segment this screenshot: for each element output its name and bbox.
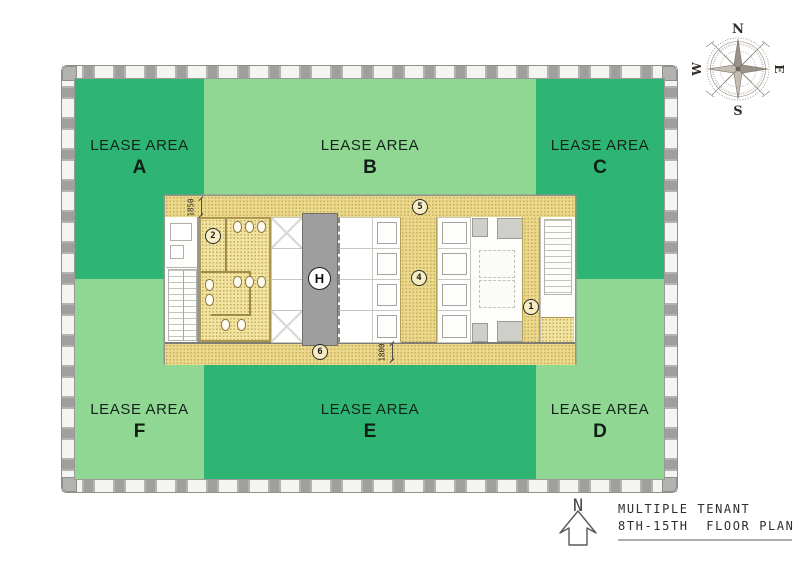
lease-area-e-label: LEASE AREA E [204,401,536,443]
hoistway-marker: H [308,267,331,290]
lease-area-c-title: LEASE AREA [536,137,664,154]
lease-area-a-letter: A [75,157,204,179]
drawing-title: MULTIPLE TENANT 8TH-15TH FLOOR PLAN [618,501,795,541]
elevator-cars-west [372,217,400,342]
keynote-4: 4 [411,270,427,286]
lease-area-d-title: LEASE AREA [536,401,664,418]
corner-column [62,477,77,492]
keynote-1: 1 [523,299,539,315]
stair-west [168,269,197,341]
drawing-title-line1: MULTIPLE TENANT [618,501,795,518]
keynote-2: 2 [205,228,221,244]
lease-area-a-title: LEASE AREA [75,137,204,154]
south-corridor [165,342,575,365]
lease-area-b-letter: B [204,157,536,179]
lease-area-e-letter: E [204,421,536,443]
elevator-bank-west [338,217,372,342]
keynote-6: 6 [312,344,328,360]
title-underline [618,539,792,541]
facade-north [62,66,677,79]
lease-area-f-label: LEASE AREA F [75,401,204,443]
compass-east-label: E [772,64,784,73]
lease-area-c-label: LEASE AREA C [536,137,664,179]
north-arrow-label: N [573,496,583,516]
mechanical-room [470,217,522,342]
north-arrow-icon: N [551,495,609,551]
shaft-column [271,217,302,342]
elevator-cars-east [437,217,470,342]
compass-west-label: W [692,62,704,77]
west-stair-room [166,217,199,342]
lease-area-b-label: LEASE AREA B [204,137,536,179]
floor-plan-canvas: N S E W LEASE AREA A LEASE AREA B [0,0,800,563]
core-band [165,217,575,342]
dimension-south: 1800 [378,343,387,361]
lease-area-b-title: LEASE AREA [204,137,536,154]
drawing-title-line2: 8TH-15TH FLOOR PLAN [618,518,795,535]
facade-east [664,66,677,492]
lease-area-d-label: LEASE AREA D [536,401,664,443]
corner-column [662,66,677,81]
east-corridor [522,217,540,342]
compass-south-label: S [733,104,742,118]
facade-south [62,479,677,492]
service-core: H 5 6 2 4 1 1850 1800 [165,196,575,363]
lease-area-a-label: LEASE AREA A [75,137,204,179]
building-outline: LEASE AREA A LEASE AREA B LEASE AREA C L… [62,66,677,492]
east-stair-room [540,217,573,342]
service-room [541,317,574,342]
dimension-north: 1850 [187,198,196,216]
compass-north-label: N [732,22,744,37]
lease-area-d-letter: D [536,421,664,443]
lease-area-f-title: LEASE AREA [75,401,204,418]
lease-area-f-letter: F [75,421,204,443]
lease-area-c-letter: C [536,157,664,179]
stair-east [544,219,572,295]
facade-west [62,66,75,492]
keynote-5: 5 [412,199,428,215]
utility-room [166,217,197,268]
lease-area-e-title: LEASE AREA [204,401,536,418]
corner-column [662,477,677,492]
compass-rose-icon: N S E W [692,20,784,118]
